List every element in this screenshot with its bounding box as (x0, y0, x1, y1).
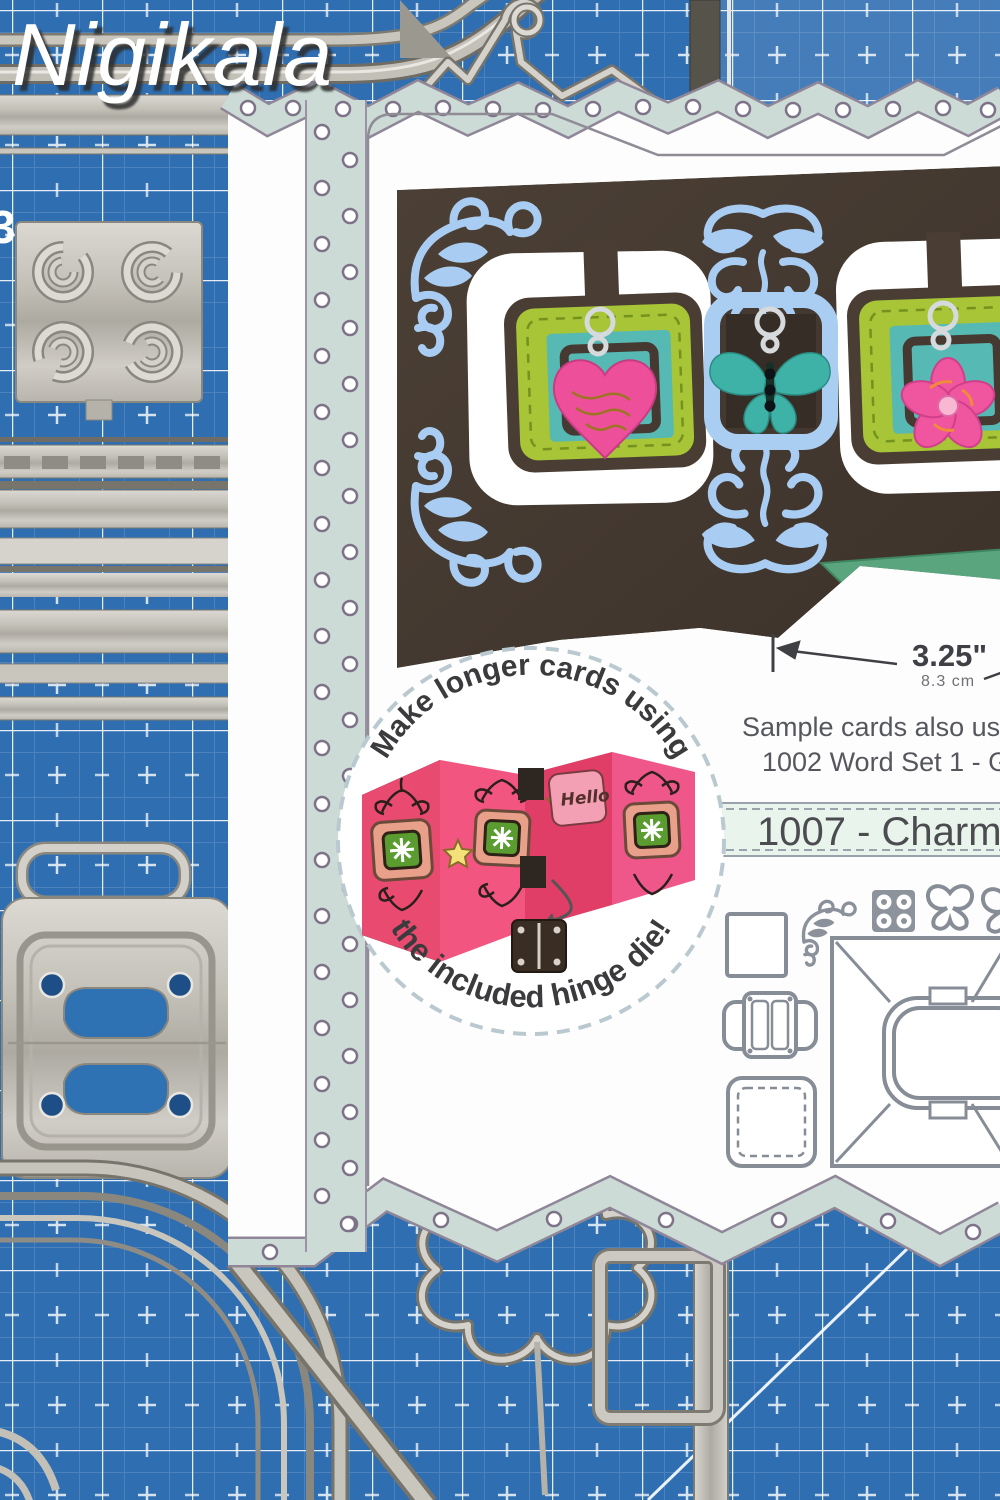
hello-tag: Hello (548, 769, 613, 827)
swirl-square-die (16, 222, 202, 420)
hinge-inset-circle: Hello Make longer cards using the includ… (338, 648, 724, 1034)
die-frame-outline (832, 938, 1000, 1166)
hinge-on-card (518, 768, 544, 800)
sample-note-line2: 1002 Word Set 1 - Gre (762, 747, 1000, 778)
die-swirl-plate-outline (872, 890, 915, 932)
product-title: 1007 - Charm A (757, 810, 1000, 855)
hinge-die-plate (2, 848, 232, 1178)
die-stitched-square-outline (728, 1078, 815, 1166)
dimension-cm: 8.3 cm (921, 673, 975, 691)
watermark: Nigikala (12, 4, 333, 106)
hinge-die-graphic (512, 920, 566, 972)
die-butterfly-outline (928, 886, 972, 928)
die-square-outline (727, 914, 786, 976)
dimension-inches: 3.25" (912, 638, 987, 674)
hinge-on-card (520, 856, 546, 888)
sample-note-line1: Sample cards also us (742, 712, 1000, 743)
die-hinge-outline (724, 993, 816, 1057)
mat-number-label: 3 (0, 201, 16, 253)
